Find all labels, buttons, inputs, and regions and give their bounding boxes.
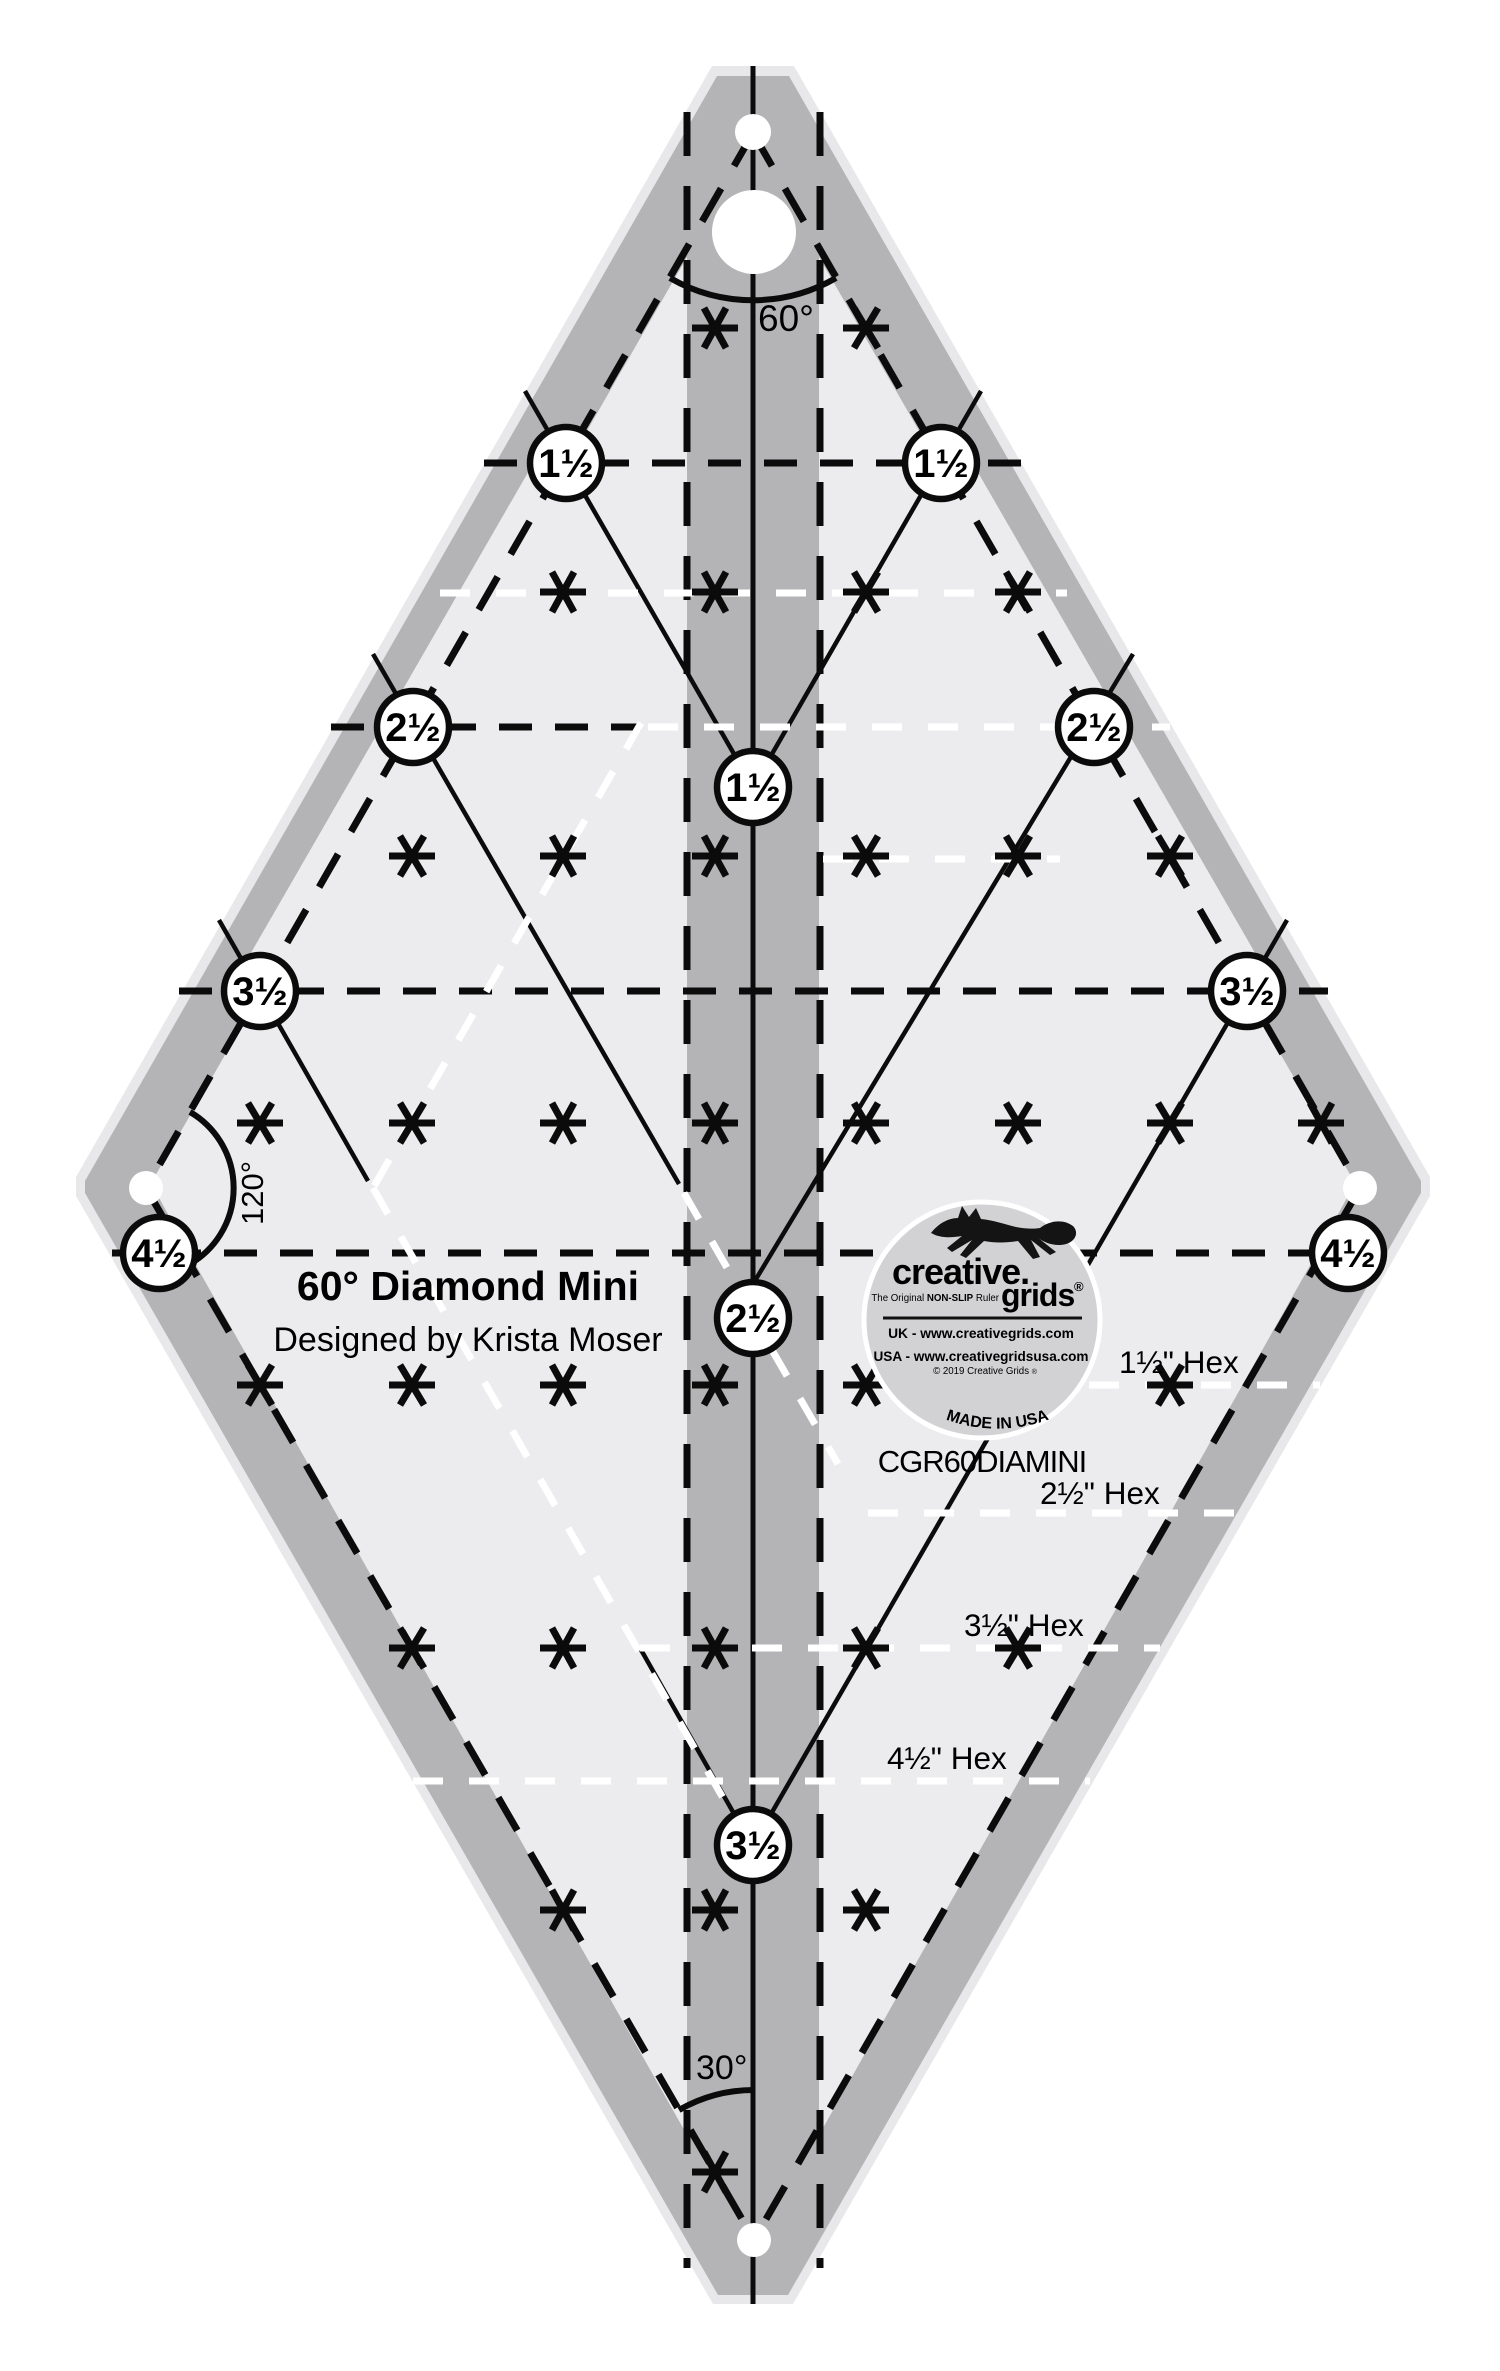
svg-text:4½: 4½ bbox=[1320, 1232, 1376, 1276]
svg-text:3½" Hex: 3½" Hex bbox=[964, 1607, 1084, 1643]
svg-text:4½" Hex: 4½" Hex bbox=[887, 1740, 1007, 1776]
svg-text:© 2019 Creative Grids ®: © 2019 Creative Grids ® bbox=[933, 1366, 1038, 1377]
svg-text:2½" Hex: 2½" Hex bbox=[1040, 1475, 1160, 1511]
svg-text:60°: 60° bbox=[758, 298, 814, 339]
svg-text:grids: grids bbox=[1001, 1277, 1074, 1313]
svg-text:120°: 120° bbox=[235, 1161, 270, 1225]
svg-text:1½: 1½ bbox=[913, 442, 969, 486]
svg-text:60° Diamond Mini: 60° Diamond Mini bbox=[297, 1263, 639, 1309]
svg-text:30°: 30° bbox=[696, 2049, 747, 2087]
svg-text:Designed by Krista Moser: Designed by Krista Moser bbox=[273, 1321, 662, 1359]
svg-text:3½: 3½ bbox=[232, 970, 288, 1014]
svg-text:1½" Hex: 1½" Hex bbox=[1119, 1344, 1239, 1380]
svg-text:2½: 2½ bbox=[385, 706, 441, 750]
svg-text:2½: 2½ bbox=[725, 1297, 781, 1341]
svg-text:2½: 2½ bbox=[1066, 706, 1122, 750]
svg-text:4½: 4½ bbox=[131, 1232, 187, 1276]
svg-text:CGR60DIAMINI: CGR60DIAMINI bbox=[878, 1444, 1086, 1479]
svg-text:The Original NON-SLIP Ruler: The Original NON-SLIP Ruler bbox=[871, 1293, 999, 1304]
svg-text:USA - www.creativegridsusa.com: USA - www.creativegridsusa.com bbox=[873, 1349, 1088, 1364]
svg-text:3½: 3½ bbox=[725, 1824, 781, 1868]
svg-text:1½: 1½ bbox=[538, 442, 594, 486]
svg-text:®: ® bbox=[1074, 1279, 1084, 1294]
svg-text:1½: 1½ bbox=[725, 766, 781, 810]
svg-text:UK - www.creativegrids.com: UK - www.creativegrids.com bbox=[888, 1326, 1074, 1341]
svg-text:3½: 3½ bbox=[1219, 970, 1275, 1014]
